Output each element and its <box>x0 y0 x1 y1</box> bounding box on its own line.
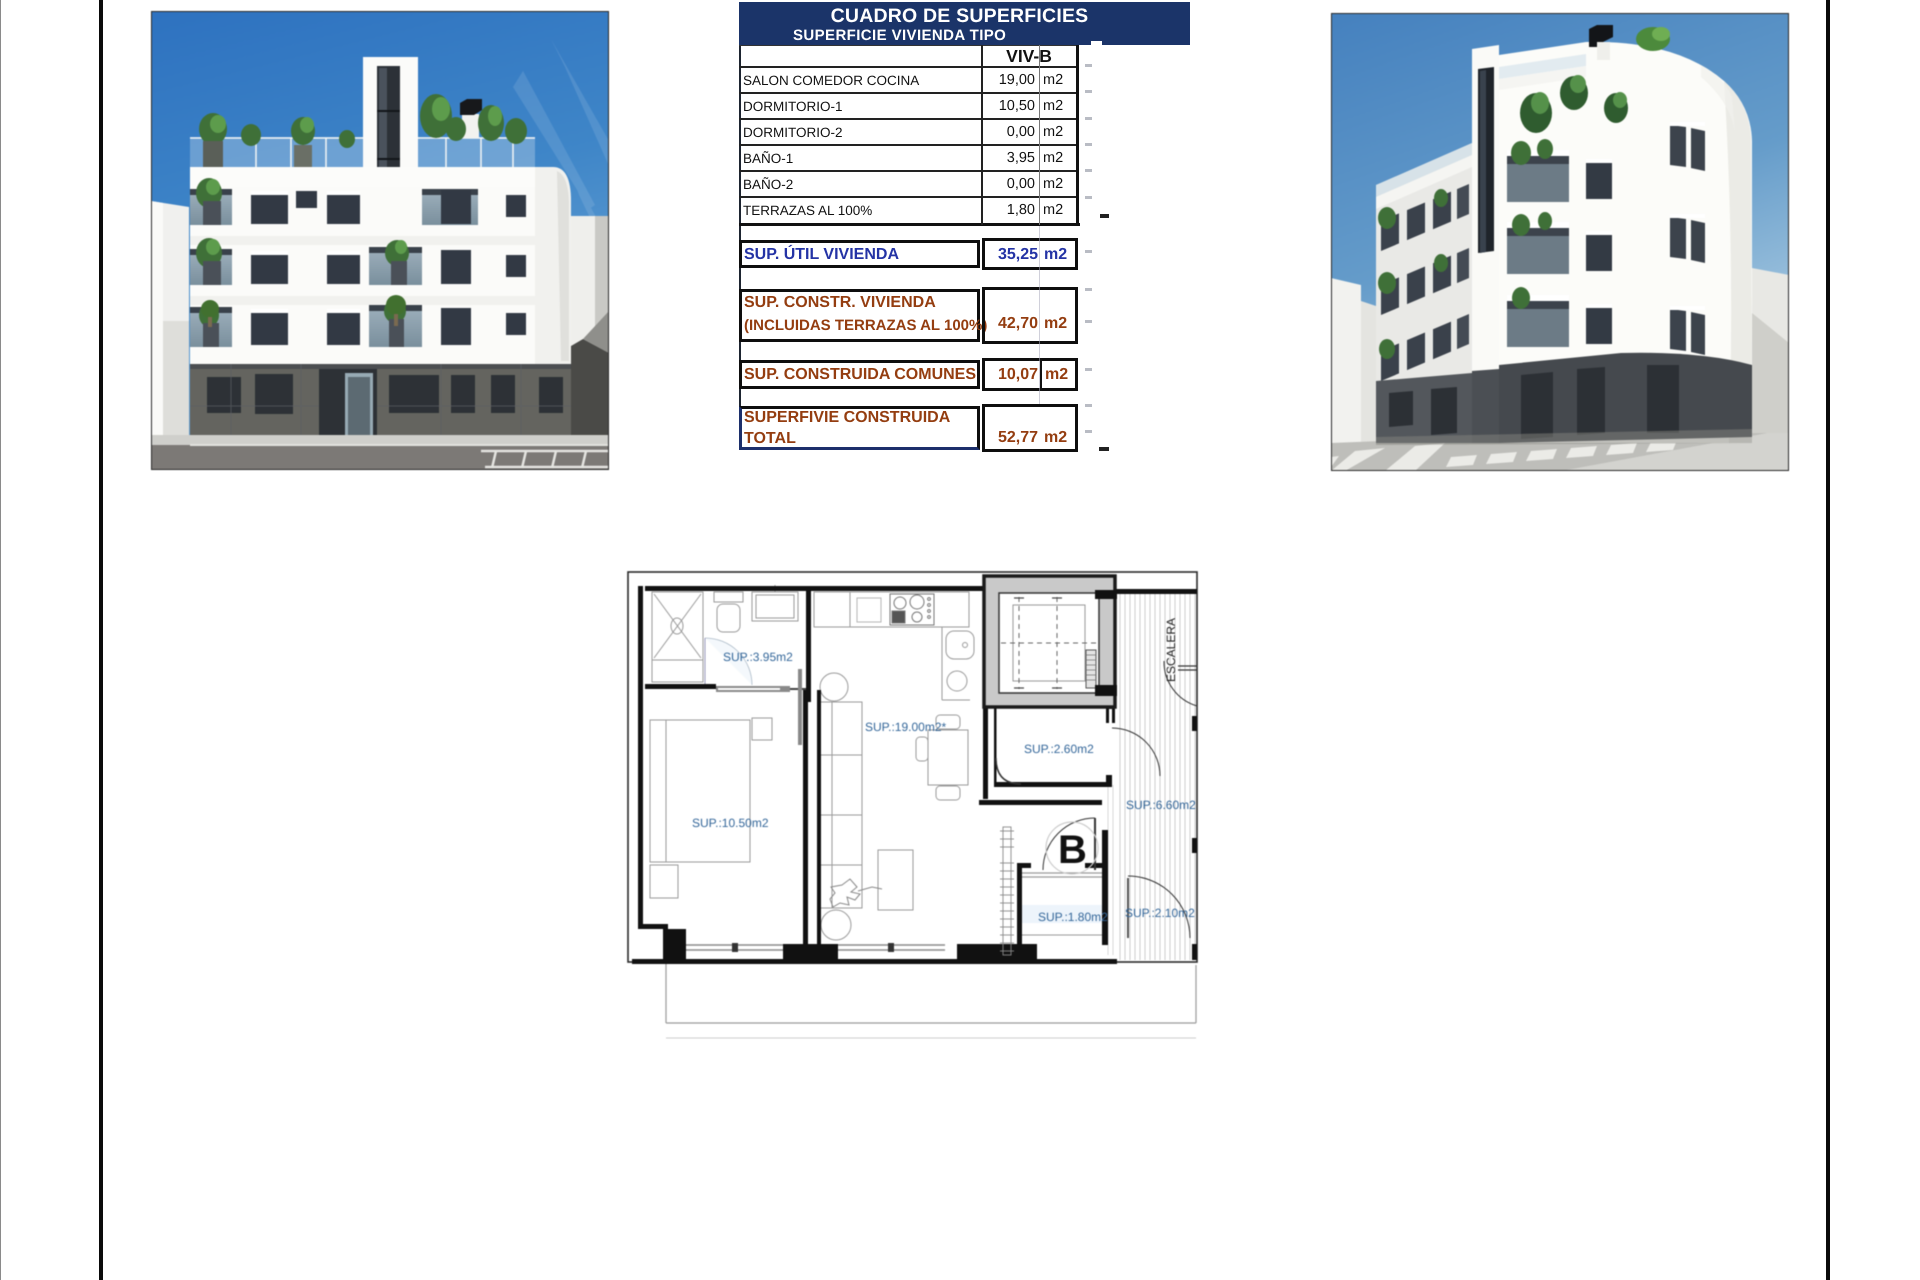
svg-text:SUP.:2.60m2: SUP.:2.60m2 <box>1024 742 1094 756</box>
svg-text:SUP.:6.60m2: SUP.:6.60m2 <box>1126 798 1196 812</box>
svg-text:ESCALERA: ESCALERA <box>1164 618 1178 682</box>
svg-text:B: B <box>1058 828 1087 872</box>
svg-text:SUP.:2.10m2: SUP.:2.10m2 <box>1125 906 1195 920</box>
svg-text:SUP.:1.80m2: SUP.:1.80m2 <box>1038 910 1108 924</box>
svg-text:SUP.:10.50m2: SUP.:10.50m2 <box>692 816 769 830</box>
svg-text:SUP.:19.00m2*: SUP.:19.00m2* <box>865 720 946 734</box>
svg-text:SUP.:3.95m2: SUP.:3.95m2 <box>723 650 793 664</box>
